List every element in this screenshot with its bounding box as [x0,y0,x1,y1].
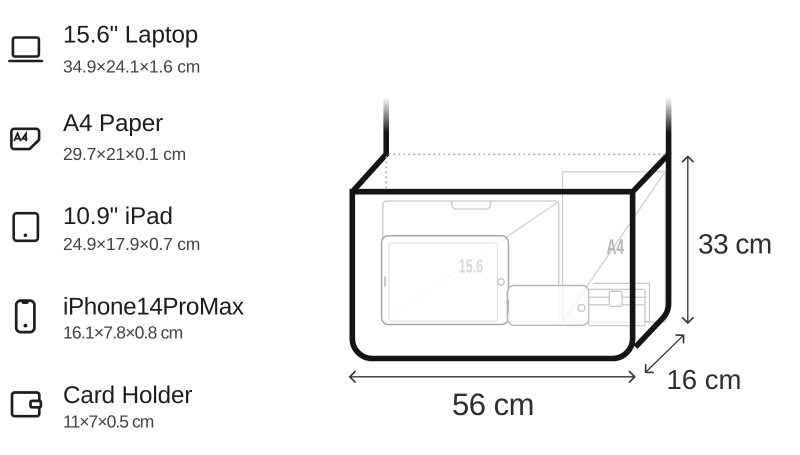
svg-text:15.6: 15.6 [459,256,484,277]
svg-text:Card Holder: Card Holder [63,382,192,409]
svg-text:11×7×0.5 cm: 11×7×0.5 cm [63,411,154,431]
svg-text:10.9" iPad: 10.9" iPad [63,203,173,230]
svg-text:16.1×7.8×0.8 cm: 16.1×7.8×0.8 cm [63,322,183,342]
svg-text:A4: A4 [607,235,625,259]
svg-text:iPhone14ProMax: iPhone14ProMax [63,293,244,320]
svg-text:33 cm: 33 cm [698,229,772,260]
svg-text:16 cm: 16 cm [667,364,742,395]
svg-text:34.9×24.1×1.6 cm: 34.9×24.1×1.6 cm [63,57,200,77]
svg-text:56 cm: 56 cm [452,387,534,422]
svg-text:24.9×17.9×0.7 cm: 24.9×17.9×0.7 cm [63,234,200,254]
svg-text:29.7×21×0.1 cm: 29.7×21×0.1 cm [63,144,186,164]
svg-text:15.6" Laptop: 15.6" Laptop [63,22,198,49]
svg-text:A4 Paper: A4 Paper [63,110,163,137]
